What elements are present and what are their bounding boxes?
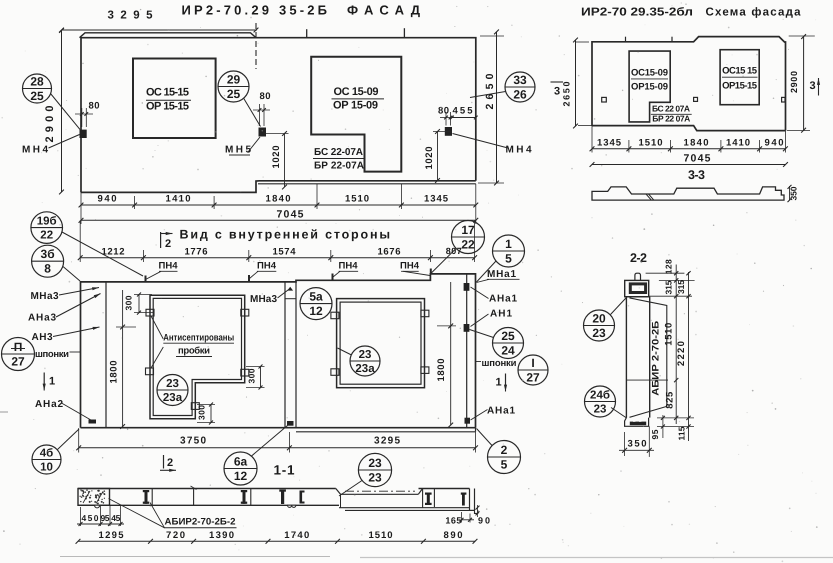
svg-text:1: 1 bbox=[505, 237, 512, 251]
svg-text:3-3: 3-3 bbox=[688, 168, 706, 182]
svg-text:3750: 3750 bbox=[180, 436, 206, 447]
svg-text:23: 23 bbox=[166, 378, 179, 390]
svg-text:27: 27 bbox=[526, 370, 540, 384]
svg-text:Схема фасада: Схема фасада bbox=[706, 7, 802, 19]
svg-text:БР 22-07А: БР 22-07А bbox=[314, 161, 364, 172]
svg-text:45: 45 bbox=[111, 513, 120, 523]
svg-text:940: 940 bbox=[765, 137, 784, 148]
svg-text:БС 22 07А: БС 22 07А bbox=[652, 104, 690, 114]
svg-text:1-1: 1-1 bbox=[274, 463, 296, 478]
svg-text:5: 5 bbox=[501, 457, 508, 471]
svg-text:1840: 1840 bbox=[684, 137, 709, 148]
svg-text:80: 80 bbox=[438, 106, 449, 117]
svg-text:П: П bbox=[14, 340, 23, 354]
svg-text:3: 3 bbox=[554, 86, 560, 98]
svg-text:23: 23 bbox=[594, 403, 607, 415]
svg-text:450: 450 bbox=[82, 513, 99, 523]
svg-text:24б: 24б bbox=[590, 389, 610, 401]
svg-text:МНа3: МНа3 bbox=[250, 294, 277, 305]
svg-text:1345: 1345 bbox=[597, 137, 622, 148]
svg-text:890: 890 bbox=[444, 530, 463, 541]
svg-text:ПН4: ПН4 bbox=[400, 260, 420, 271]
svg-text:3295: 3295 bbox=[374, 436, 400, 447]
svg-text:ОР 15-09: ОР 15-09 bbox=[333, 100, 378, 112]
svg-text:ИР2-70.29 35-2Б: ИР2-70.29 35-2Б bbox=[182, 3, 329, 18]
svg-text:23а: 23а bbox=[163, 392, 183, 404]
svg-text:7045: 7045 bbox=[684, 153, 711, 165]
svg-text:165: 165 bbox=[445, 516, 461, 526]
svg-text:2900: 2900 bbox=[789, 71, 799, 93]
svg-text:ОР15-15: ОР15-15 bbox=[722, 81, 758, 92]
svg-text:24: 24 bbox=[501, 343, 515, 357]
svg-text:17: 17 bbox=[461, 223, 475, 237]
svg-text:1740: 1740 bbox=[284, 530, 309, 541]
svg-text:МН4: МН4 bbox=[506, 145, 532, 156]
svg-text:1510: 1510 bbox=[639, 137, 663, 148]
svg-text:ОС 15-15: ОС 15-15 bbox=[146, 87, 189, 99]
svg-text:315: 315 bbox=[663, 280, 673, 294]
svg-text:95: 95 bbox=[101, 513, 110, 523]
svg-text:115: 115 bbox=[677, 426, 687, 440]
svg-text:1390: 1390 bbox=[209, 530, 234, 541]
svg-text:БС 22-07А: БС 22-07А bbox=[314, 147, 363, 158]
svg-text:315: 315 bbox=[676, 280, 686, 294]
svg-text:25: 25 bbox=[501, 329, 515, 343]
svg-text:ОС 15-09: ОС 15-09 bbox=[334, 86, 379, 98]
svg-text:1410: 1410 bbox=[726, 137, 750, 148]
svg-text:3: 3 bbox=[809, 80, 815, 92]
svg-text:1510: 1510 bbox=[664, 323, 675, 346]
svg-text:1574: 1574 bbox=[273, 247, 297, 258]
svg-text:1020: 1020 bbox=[271, 146, 282, 169]
svg-text:АНа3: АНа3 bbox=[28, 312, 56, 323]
svg-text:128: 128 bbox=[663, 259, 673, 274]
svg-text:БР 22 07А: БР 22 07А bbox=[652, 113, 690, 123]
svg-text:1510: 1510 bbox=[345, 194, 369, 205]
svg-text:12: 12 bbox=[309, 304, 323, 318]
svg-text:300: 300 bbox=[124, 295, 134, 310]
svg-text:ИР2-70 29.35-2бл: ИР2-70 29.35-2бл bbox=[581, 7, 693, 19]
svg-text:2: 2 bbox=[167, 457, 173, 469]
svg-text:2220: 2220 bbox=[676, 341, 687, 366]
svg-text:28: 28 bbox=[30, 74, 44, 88]
svg-text:80: 80 bbox=[89, 101, 100, 112]
svg-text:26: 26 bbox=[513, 87, 527, 101]
svg-text:АБИР2-70-2Б-2: АБИР2-70-2Б-2 bbox=[165, 517, 236, 528]
svg-text:1800: 1800 bbox=[436, 359, 447, 382]
svg-text:АНа1: АНа1 bbox=[487, 405, 515, 416]
svg-text:20: 20 bbox=[592, 311, 606, 325]
svg-text:1345: 1345 bbox=[424, 194, 449, 205]
svg-text:1510: 1510 bbox=[369, 530, 393, 541]
svg-text:1295: 1295 bbox=[99, 530, 125, 541]
svg-text:Антисептированы: Антисептированы bbox=[163, 332, 234, 343]
svg-text:1776: 1776 bbox=[185, 247, 208, 258]
svg-text:2-2: 2-2 bbox=[630, 251, 648, 265]
svg-text:455: 455 bbox=[453, 106, 474, 117]
svg-text:23: 23 bbox=[359, 349, 372, 361]
svg-text:10: 10 bbox=[40, 461, 53, 473]
svg-text:825: 825 bbox=[665, 391, 676, 409]
svg-text:1: 1 bbox=[49, 376, 55, 388]
svg-text:12: 12 bbox=[234, 469, 248, 483]
svg-text:25: 25 bbox=[227, 87, 241, 101]
svg-text:1212: 1212 bbox=[102, 247, 125, 258]
svg-text:300: 300 bbox=[247, 368, 257, 383]
svg-text:пробки: пробки bbox=[178, 346, 210, 357]
svg-text:1800: 1800 bbox=[109, 361, 120, 384]
svg-text:22: 22 bbox=[40, 230, 53, 242]
svg-text:МН5: МН5 bbox=[225, 145, 251, 156]
svg-text:95: 95 bbox=[650, 429, 660, 439]
svg-text:шпонки: шпонки bbox=[482, 358, 517, 369]
svg-text:33: 33 bbox=[513, 73, 527, 87]
svg-text:350: 350 bbox=[628, 439, 647, 450]
svg-text:АНа2: АНа2 bbox=[35, 399, 63, 410]
svg-text:ОР15-09: ОР15-09 bbox=[631, 82, 668, 93]
svg-text:ПН4: ПН4 bbox=[339, 260, 359, 271]
svg-text:2650: 2650 bbox=[562, 82, 572, 107]
svg-text:19б: 19б bbox=[37, 215, 57, 227]
svg-text:1: 1 bbox=[495, 377, 501, 389]
svg-text:8: 8 bbox=[44, 262, 51, 276]
svg-text:МНа1: МНа1 bbox=[487, 269, 516, 280]
svg-text:ФАСАД: ФАСАД bbox=[347, 3, 423, 18]
svg-text:90: 90 bbox=[478, 516, 490, 526]
svg-text:27: 27 bbox=[11, 354, 25, 368]
svg-text:5: 5 bbox=[505, 251, 512, 265]
svg-text:АНа1: АНа1 bbox=[489, 293, 517, 304]
svg-text:АН3: АН3 bbox=[32, 332, 53, 343]
svg-text:23: 23 bbox=[368, 456, 382, 470]
svg-text:2: 2 bbox=[165, 238, 171, 250]
svg-text:4б: 4б bbox=[40, 447, 54, 459]
svg-text:шпонки: шпонки bbox=[35, 349, 69, 360]
svg-text:АБИР 2-70-2Б: АБИР 2-70-2Б bbox=[651, 321, 662, 396]
svg-text:25: 25 bbox=[30, 89, 44, 103]
svg-text:Вид с внутренней стороны: Вид с внутренней стороны bbox=[180, 228, 392, 242]
svg-text:22: 22 bbox=[461, 237, 475, 251]
svg-text:ОС15 15: ОС15 15 bbox=[722, 66, 758, 77]
svg-text:ОР 15-15: ОР 15-15 bbox=[146, 101, 189, 113]
svg-text:АН1: АН1 bbox=[490, 308, 512, 319]
svg-text:ОС15-09: ОС15-09 bbox=[631, 68, 668, 79]
svg-text:29: 29 bbox=[227, 72, 241, 86]
svg-text:940: 940 bbox=[98, 194, 117, 205]
svg-text:7045: 7045 bbox=[277, 209, 304, 221]
svg-text:ПН4: ПН4 bbox=[257, 260, 277, 271]
svg-text:1676: 1676 bbox=[378, 247, 401, 258]
svg-text:I: I bbox=[531, 356, 534, 370]
svg-text:350: 350 bbox=[789, 186, 799, 200]
svg-text:23а: 23а bbox=[355, 363, 375, 375]
svg-text:1410: 1410 bbox=[166, 194, 191, 205]
svg-text:300: 300 bbox=[197, 405, 207, 420]
svg-text:1020: 1020 bbox=[424, 147, 435, 170]
svg-text:23: 23 bbox=[592, 326, 606, 340]
svg-text:2: 2 bbox=[501, 443, 508, 457]
svg-text:3б: 3б bbox=[41, 247, 55, 261]
svg-text:МН4: МН4 bbox=[22, 145, 48, 156]
svg-text:МНа3: МНа3 bbox=[31, 291, 59, 302]
svg-text:ПН4: ПН4 bbox=[159, 260, 179, 271]
svg-text:6а: 6а bbox=[234, 454, 248, 468]
svg-text:720: 720 bbox=[166, 530, 185, 541]
svg-text:80: 80 bbox=[260, 91, 271, 102]
svg-text:5а: 5а bbox=[309, 289, 323, 303]
svg-text:1840: 1840 bbox=[266, 194, 291, 205]
svg-text:23: 23 bbox=[368, 470, 382, 484]
